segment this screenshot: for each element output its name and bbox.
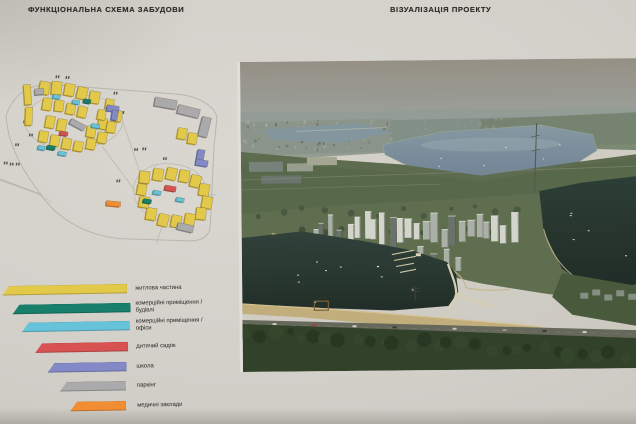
legend: житлова частинакомерційні приміщення /бу… [0,276,234,422]
legend-item-label: школа [136,362,214,370]
legend-label-line: офіси [136,324,214,332]
legend-item-label: житлова частина [135,284,213,292]
legend-label-line: комерційні приміщення / [135,299,213,307]
legend-label-line: житлова частина [135,284,213,292]
visualization-title: ВІЗУАЛІЗАЦІЯ ПРОЕКТУ [390,5,491,14]
legend-label-line: школа [136,362,214,370]
legend-color-bar [35,342,128,353]
photo-haze [240,58,636,112]
functional-scheme-title: ФУНКЦІОНАЛЬНА СХЕМА ЗАБУДОВИ [28,5,184,14]
legend-label-line: комерційні приміщення / [136,317,214,325]
presentation-board: ФУНКЦІОНАЛЬНА СХЕМА ЗАБУДОВИ ВІЗУАЛІЗАЦІ… [0,0,636,424]
legend-item-label: комерційні приміщення /будівлі [135,299,213,314]
legend-item-label: паркінг [137,381,215,389]
legend-item-label: дитячий садок [136,342,214,350]
project-visualization-photo [237,58,636,373]
legend-label-line: паркінг [137,381,215,389]
legend-color-bar [60,381,126,392]
legend-color-bar [12,303,130,315]
legend-label-line: медичні заклади [137,401,215,409]
legend-label-line: дитячий садок [136,342,214,350]
legend-color-bar [2,284,127,296]
legend-color-bar [22,321,130,332]
legend-color-bar [70,401,126,411]
legend-color-bar [47,362,126,373]
aerial-render [240,58,636,372]
legend-label-line: будівлі [135,306,213,314]
legend-item-label: медичні заклади [137,401,215,409]
legend-item-label: комерційні приміщення /офіси [136,317,214,332]
site-plan-drawing [0,40,240,282]
